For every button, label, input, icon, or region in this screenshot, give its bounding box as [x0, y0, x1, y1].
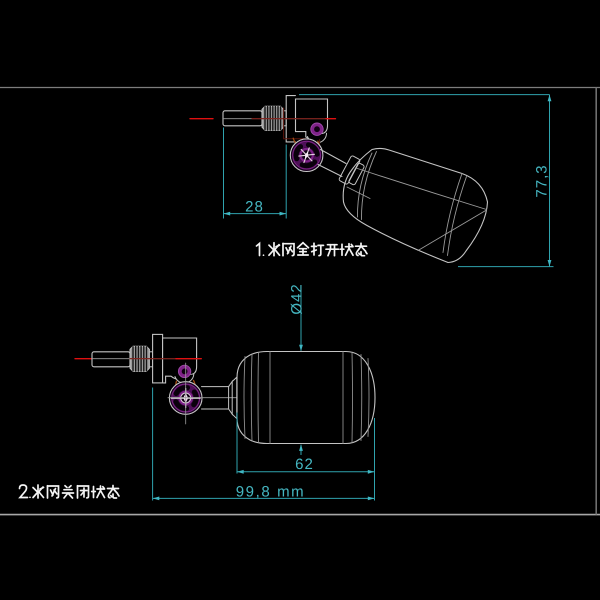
svg-text:Ø42: Ø42: [289, 283, 306, 314]
svg-text:28: 28: [245, 199, 264, 216]
svg-text:77,3: 77,3: [534, 164, 551, 197]
svg-text:99,8 mm: 99,8 mm: [236, 483, 306, 500]
svg-text:62: 62: [295, 456, 314, 473]
